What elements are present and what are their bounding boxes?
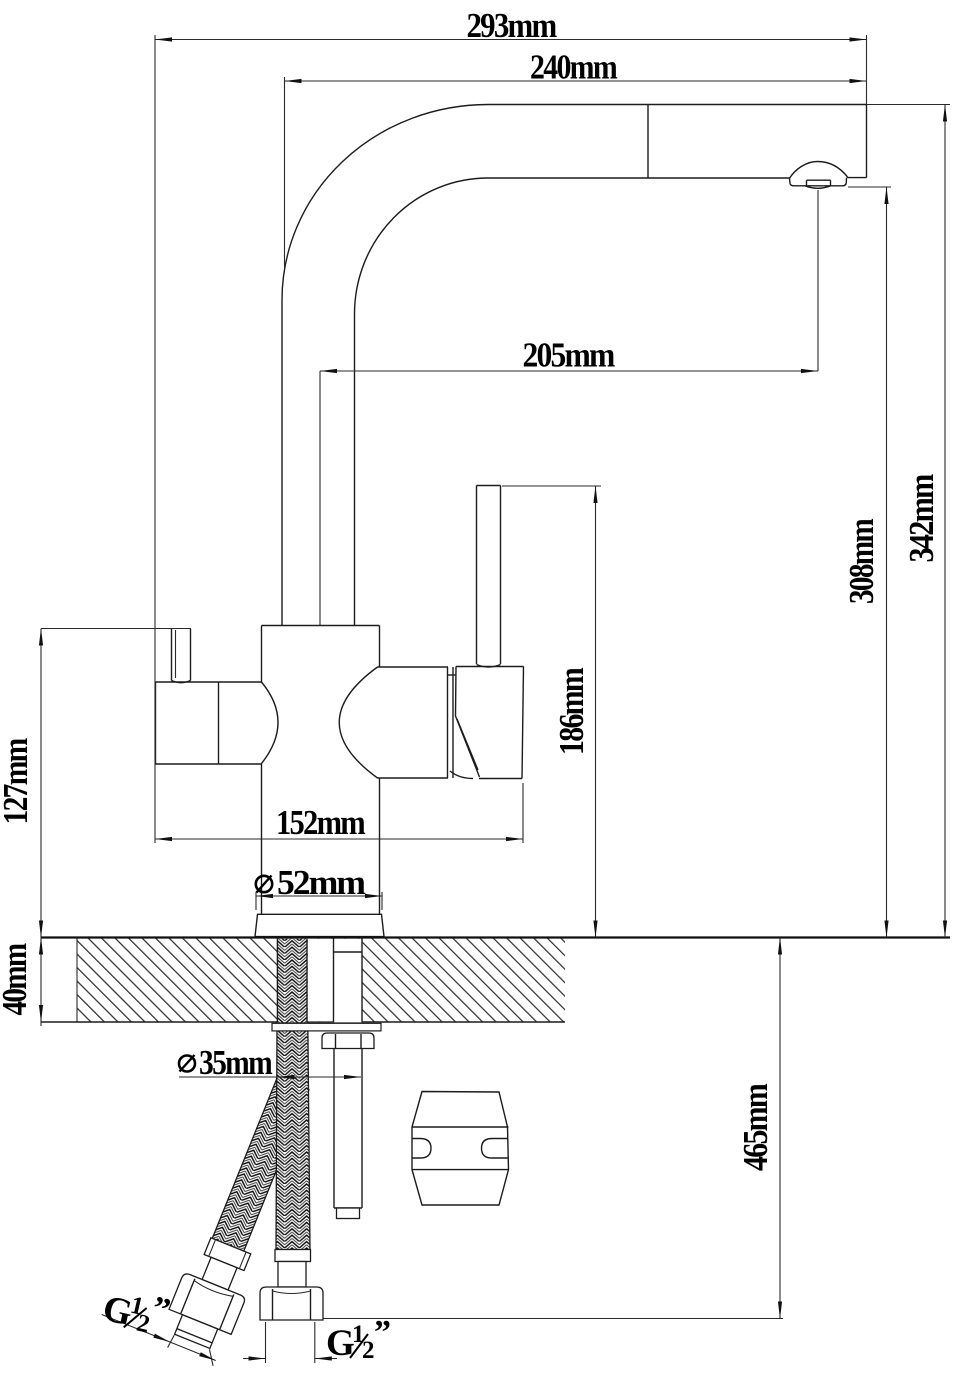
svg-text:240mm: 240mm xyxy=(530,48,618,87)
svg-text:152mm: 152mm xyxy=(276,803,366,842)
svg-text:40mm: 40mm xyxy=(0,943,34,1016)
svg-text:2: 2 xyxy=(362,1337,375,1364)
svg-text:186mm: 186mm xyxy=(552,667,591,755)
svg-text:52mm: 52mm xyxy=(277,863,366,902)
svg-text:293mm: 293mm xyxy=(467,6,558,45)
svg-text:205mm: 205mm xyxy=(523,336,616,375)
svg-text:342mm: 342mm xyxy=(902,474,941,563)
svg-text:127mm: 127mm xyxy=(0,738,35,825)
svg-text:35mm: 35mm xyxy=(199,1043,273,1082)
svg-text:465mm: 465mm xyxy=(736,1083,775,1171)
svg-text:308mm: 308mm xyxy=(842,518,881,604)
svg-text:”: ” xyxy=(374,1314,391,1351)
